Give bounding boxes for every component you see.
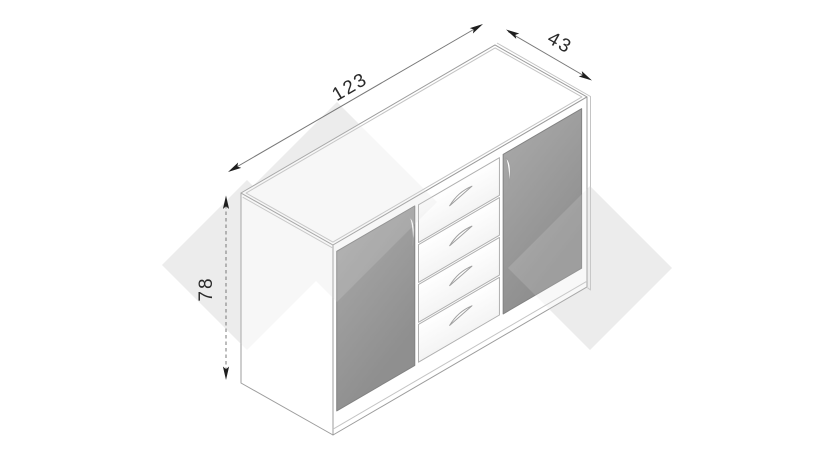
height-dimension-label: 78 [196, 276, 217, 301]
dimension-arrowhead-icon [226, 163, 241, 175]
drawing-canvas: 123 43 78 [0, 0, 825, 464]
dimension-arrowhead-icon [579, 71, 594, 83]
width-dimension-label: 123 [329, 69, 372, 106]
sideboard-dimension-diagram: 123 43 78 [0, 0, 825, 464]
dimension-arrowhead-icon [470, 21, 485, 33]
depth-dimension-label: 43 [544, 28, 576, 59]
